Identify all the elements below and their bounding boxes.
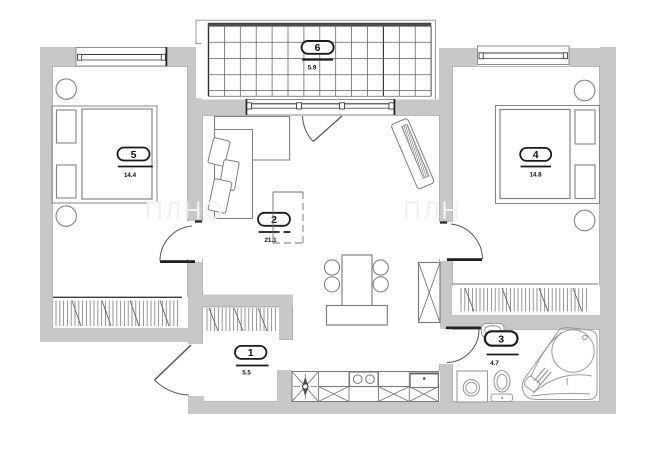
svg-text:2: 2 [271, 214, 277, 226]
svg-text:4.7: 4.7 [490, 360, 499, 367]
svg-text:14.8: 14.8 [529, 172, 542, 179]
svg-text:5.9: 5.9 [308, 65, 317, 72]
svg-text:ПЛН: ПЛН [403, 197, 461, 225]
svg-text:14.4: 14.4 [124, 172, 137, 179]
svg-text:3: 3 [498, 333, 504, 345]
svg-text:1: 1 [248, 347, 254, 359]
svg-text:4: 4 [533, 149, 539, 161]
svg-text:5.5: 5.5 [242, 370, 251, 377]
svg-text:5: 5 [131, 149, 137, 161]
svg-text:6: 6 [315, 42, 321, 54]
svg-text:ПЛНО: ПЛНО [145, 197, 225, 225]
